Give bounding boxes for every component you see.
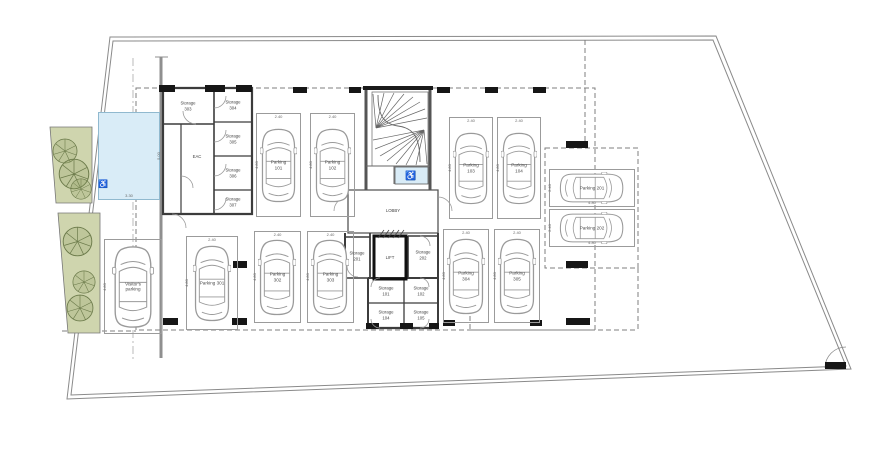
- room-label-storage-101: Storage 101: [378, 285, 393, 296]
- tree-icon: [73, 271, 95, 293]
- dimension-width: 2.40: [462, 231, 470, 235]
- room-label-storage-303: Storage 303: [180, 100, 195, 111]
- room-label-storage-306: Storage 306: [225, 167, 240, 178]
- parking-spot-label: Parking 303: [319, 272, 342, 283]
- dimension-width: 2.40: [548, 184, 552, 192]
- parking-spot-label: Parking 301: [200, 280, 225, 286]
- gate-marker: [825, 362, 846, 369]
- tree-icon: [71, 179, 91, 199]
- dimension-length: 4.80: [588, 241, 596, 245]
- room-label-eac: EAC: [193, 154, 202, 160]
- dimension-width: 2.40: [274, 233, 282, 237]
- parking-spot-302: 2.40 4.80 Parking 302: [254, 231, 301, 323]
- dimension-length: 4.80: [253, 273, 257, 281]
- dimension-width: 2.40: [275, 115, 283, 119]
- dimension-width: 2.40: [467, 119, 475, 123]
- wheelchair-icon: ♿: [405, 171, 416, 182]
- staircase: [372, 92, 428, 166]
- dimension-width: 2.40: [327, 233, 335, 237]
- room-label-storage-307: Storage 307: [225, 196, 240, 207]
- parking-spot-201: 4.80 2.40 Parking 201: [549, 169, 635, 207]
- room-label-storage-201: Storage 201: [349, 250, 364, 261]
- dimension-width: 3.30: [125, 194, 133, 198]
- dimension-width: 2.40: [548, 224, 552, 232]
- floor-plan-canvas: 3.30 5.00 ♿ ♿ 2.40 4.80 Parking 101 2.40…: [0, 0, 883, 453]
- parking-spot-301: 2.40 4.80 Parking 301: [186, 236, 238, 330]
- landscape-areas: [50, 127, 100, 333]
- dimension-length: 4.80: [496, 164, 500, 172]
- floor-plan-linework: [0, 0, 883, 453]
- parking-spot-304: 2.40 4.80 Parking 304: [443, 229, 489, 323]
- parking-spot-label: Visitor's parking: [125, 281, 141, 292]
- dimension-length: 4.80: [448, 164, 452, 172]
- parking-spot-label: Parking 202: [580, 225, 605, 231]
- room-label-lift: LIFT: [386, 255, 395, 261]
- dimension-length: 4.80: [309, 161, 313, 169]
- dimension-length: 4.80: [103, 283, 107, 291]
- parking-spot-101: 2.40 4.80 Parking 101: [256, 113, 301, 217]
- parking-spot-303: 2.40 4.80 Parking 303: [307, 231, 354, 323]
- dimension-width: 2.40: [329, 115, 337, 119]
- parking-spot-label: Parking 304: [455, 271, 477, 282]
- room-label-storage-104: Storage 104: [378, 309, 393, 320]
- parking-spot-202: 4.80 2.40 Parking 202: [549, 209, 635, 247]
- dimension-width: 2.40: [515, 119, 523, 123]
- dimension-length: 4.80: [306, 273, 310, 281]
- tree-icon: [67, 295, 93, 321]
- parking-spot-label: Parking 201: [580, 185, 605, 191]
- dimension-length: 5.00: [157, 152, 161, 160]
- parking-spot-label: Parking 302: [266, 272, 289, 283]
- dimension-width: 2.40: [513, 231, 521, 235]
- room-label-storage-202: Storage 202: [415, 249, 430, 260]
- dimension-length: 4.80: [255, 161, 259, 169]
- parking-spot-104: 2.40 4.80 Parking 104: [497, 117, 541, 219]
- dimension-length: 4.80: [442, 272, 446, 280]
- parking-spot-103: 2.40 4.80 Parking 103: [449, 117, 493, 219]
- parking-spot-305: 2.40 4.80 Parking 305: [494, 229, 540, 323]
- parking-spot-label: Parking 104: [509, 163, 530, 174]
- room-label-lobby: LOBBY: [386, 208, 400, 214]
- room-label-storage-305: Storage 305: [225, 133, 240, 144]
- dimension-width: 2.40: [208, 238, 216, 242]
- dimension-length: 4.80: [185, 279, 189, 287]
- room-label-storage-105: Storage 105: [413, 309, 428, 320]
- room-label-storage-304: Storage 304: [225, 99, 240, 110]
- parking-spot-label: Parking 102: [322, 160, 344, 171]
- parking-spot-label: Parking 305: [506, 271, 528, 282]
- parking-spot-label: Parking 103: [461, 163, 482, 174]
- parking-spot-visitor: 4.80 Visitor's parking: [104, 239, 162, 334]
- dimension-length: 4.80: [588, 201, 596, 205]
- room-label-storage-102: Storage 102: [413, 285, 428, 296]
- parking-spot-label: Parking 101: [268, 160, 290, 171]
- tree-icon: [63, 227, 92, 256]
- wheelchair-icon: ♿: [98, 180, 108, 189]
- parking-spot-102: 2.40 4.80 Parking 102: [310, 113, 355, 217]
- dimension-length: 4.80: [493, 272, 497, 280]
